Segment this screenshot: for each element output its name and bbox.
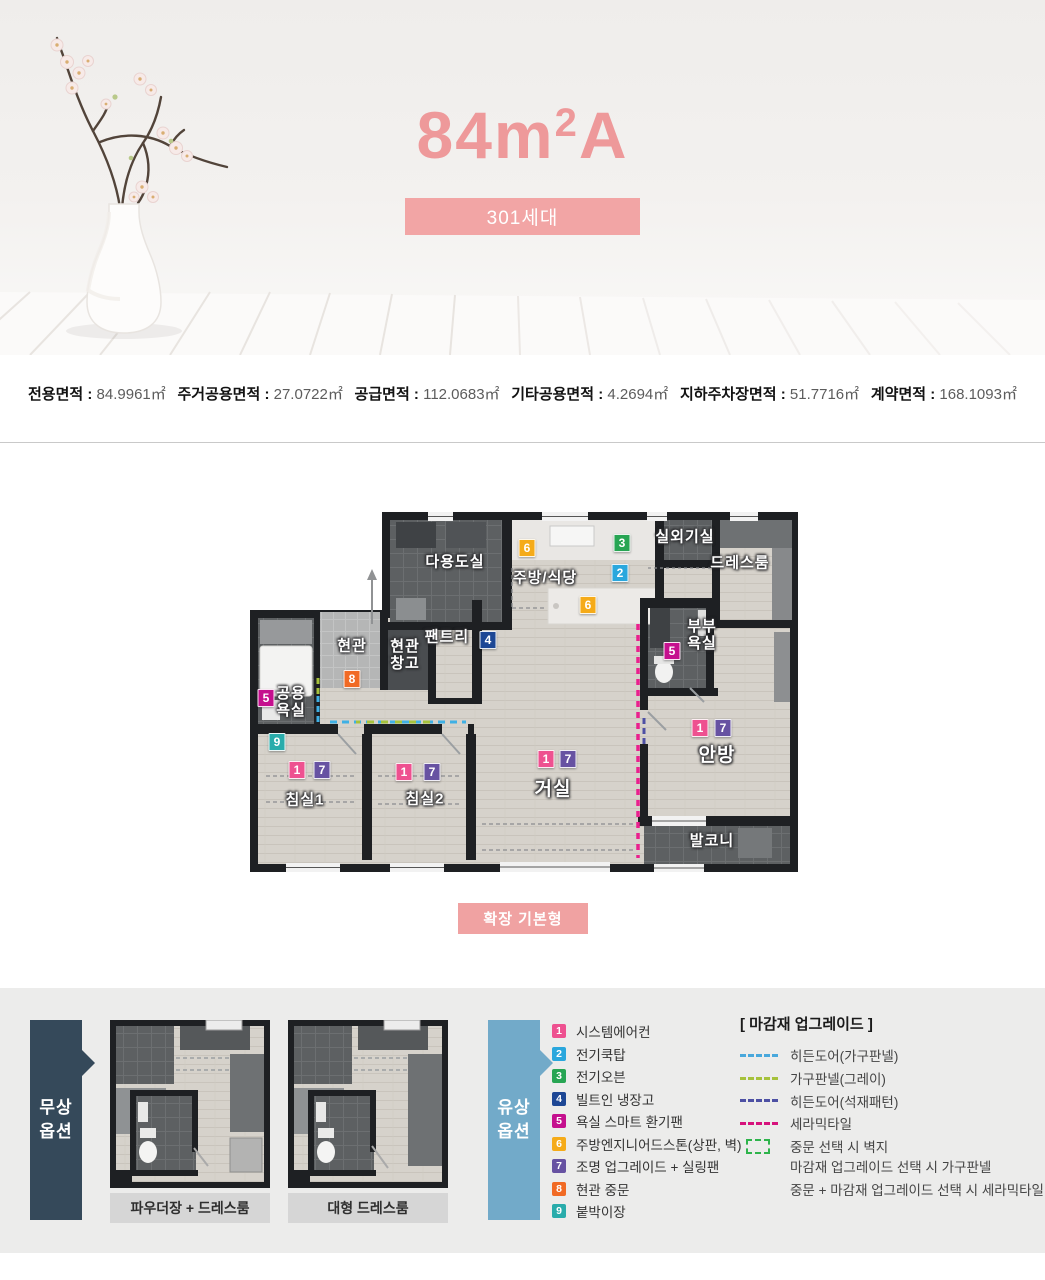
stat-parking-area: 지하주차장면적 : 51.7716㎡ [680,383,859,404]
option-badge-1: 1 [396,763,413,781]
vase-photo-illustration [0,0,1045,355]
option-badge-5: 5 [258,689,275,707]
room-label-pantry: 팬트리 [425,628,469,645]
legend-badge-7: 7 [552,1159,566,1173]
dash-line-icon [740,1099,778,1102]
legend-item: 7조명 업그레이드 + 실링팬 [552,1155,742,1178]
floor-plan: 다용도실 주방/식당 실외기실 드레스룸 현관 현관 창고 팬트리 부부 욕실 … [250,512,800,872]
legend-badge-4: 4 [552,1092,566,1106]
option-badge-7: 7 [314,761,331,779]
dash-line-icon [740,1054,778,1057]
option-badge-2: 2 [612,564,629,582]
option-badge-1: 1 [692,719,709,737]
hero-banner: 84m2A 301세대 [0,0,1045,355]
finish-row: 세라믹타일 [740,1112,1044,1135]
options-panel: 무상 옵션 [0,988,1045,1253]
option-badge-1: 1 [538,750,555,768]
finish-row: 히든도어(가구판넬) [740,1044,1044,1067]
dashed-rect-icon [746,1139,770,1154]
tab-free-options[interactable]: 무상 옵션 [30,1020,82,1220]
option-badge-8: 8 [344,670,361,688]
option-badge-4: 4 [480,631,497,649]
legend-badge-8: 8 [552,1182,566,1196]
legend-badge-5: 5 [552,1114,566,1128]
finish-upgrade-legend: [ 마감재 업그레이드 ] 히든도어(가구판넬) 가구판넬(그레이) 히든도어(… [740,1014,1044,1203]
legend-item: 1시스템에어컨 [552,1020,742,1043]
room-label-kitchen: 주방/식당 [513,569,577,586]
stat-exclusive-area: 전용면적 : 84.9961㎡ [28,383,166,404]
tab-arrow-icon [82,1050,95,1076]
room-label-balcony: 발코니 [690,832,734,849]
option-badge-7: 7 [424,763,441,781]
tab-paid-options-label: 유상 옵션 [497,1096,530,1144]
dash-line-icon [740,1077,778,1080]
finish-row: 가구판넬(그레이) [740,1067,1044,1090]
mini-plan-powder-dress-drawing [110,1020,270,1188]
finish-upgrade-title: [ 마감재 업그레이드 ] [740,1014,1044,1036]
household-count-badge: 301세대 [405,198,640,235]
stat-contract-area: 계약면적 : 168.1093㎡ [871,383,1017,404]
mini-plan-large-dress-drawing [288,1020,448,1188]
floor-plan-page: 84m2A 301세대 전용면적 : 84.9961㎡ 주거공용면적 : 27.… [0,0,1045,1280]
legend-item: 5욕실 스마트 환기팬 [552,1110,742,1133]
room-label-bedroom2: 침실2 [406,790,445,807]
stat-shared-residential-area: 주거공용면적 : 27.0722㎡ [177,383,342,404]
room-label-living: 거실 [535,779,572,801]
tab-free-options-label: 무상 옵션 [39,1096,72,1144]
room-label-master-bedroom: 안방 [699,745,736,767]
legend-item: 2전기쿡탑 [552,1043,742,1066]
legend-badge-9: 9 [552,1204,566,1218]
mini-plan-caption: 파우더장 + 드레스룸 [110,1193,270,1223]
option-badge-9: 9 [269,733,286,751]
option-badge-6: 6 [519,539,536,557]
dash-line-icon [740,1122,778,1125]
legend-item: 6주방엔지니어드스톤(상판, 벽) [552,1133,742,1156]
room-label-outdoor-unit: 실외기실 [655,528,714,545]
legend-item: 4빌트인 냉장고 [552,1088,742,1111]
option-badge-1: 1 [289,761,306,779]
legend-badge-3: 3 [552,1069,566,1083]
room-label-common-bath: 공용 욕실 [276,685,306,720]
mini-plan-powder-dress: 파우더장 + 드레스룸 [110,1020,270,1223]
stat-other-shared-area: 기타공용면적 : 4.2694㎡ [511,383,668,404]
legend-badge-2: 2 [552,1047,566,1061]
room-label-master-bath: 부부 욕실 [687,618,717,653]
tab-paid-options[interactable]: 유상 옵션 [488,1020,540,1220]
finish-note: 마감재 업그레이드 선택 시 가구판넬 [740,1157,1044,1180]
legend-item: 3전기오븐 [552,1065,742,1088]
finish-note: 중문 + 마감재 업그레이드 선택 시 세라믹타일 [740,1180,1044,1203]
stat-supply-area: 공급면적 : 112.0683㎡ [355,383,500,404]
option-badge-5: 5 [664,642,681,660]
legend-badge-1: 1 [552,1024,566,1038]
paid-options-legend: 1시스템에어컨 2전기쿡탑 3전기오븐 4빌트인 냉장고 5욕실 스마트 환기팬… [552,1020,742,1223]
legend-item: 9붙박이장 [552,1200,742,1223]
legend-badge-6: 6 [552,1137,566,1151]
option-badge-6: 6 [580,596,597,614]
room-label-utility: 다용도실 [425,553,484,570]
vase [87,204,161,333]
area-stats-bar: 전용면적 : 84.9961㎡ 주거공용면적 : 27.0722㎡ 공급면적 :… [0,383,1045,404]
expansion-type-button[interactable]: 확장 기본형 [458,903,588,934]
section-divider [0,442,1045,443]
finish-row: 히든도어(석재패턴) [740,1089,1044,1112]
mini-plan-caption: 대형 드레스룸 [288,1193,448,1223]
room-label-entrance-storage: 현관 창고 [390,638,420,673]
finish-row: 중문 선택 시 벽지 [740,1135,1044,1158]
option-badge-7: 7 [715,719,732,737]
room-label-entrance: 현관 [337,637,367,654]
unit-type-title: 84m2A [0,102,1045,168]
room-label-bedroom1: 침실1 [286,791,325,808]
room-label-dress-room: 드레스룸 [710,554,769,571]
legend-item: 8현관 중문 [552,1178,742,1201]
mini-plan-large-dress: 대형 드레스룸 [288,1020,448,1223]
option-badge-3: 3 [614,534,631,552]
option-badge-7: 7 [560,750,577,768]
